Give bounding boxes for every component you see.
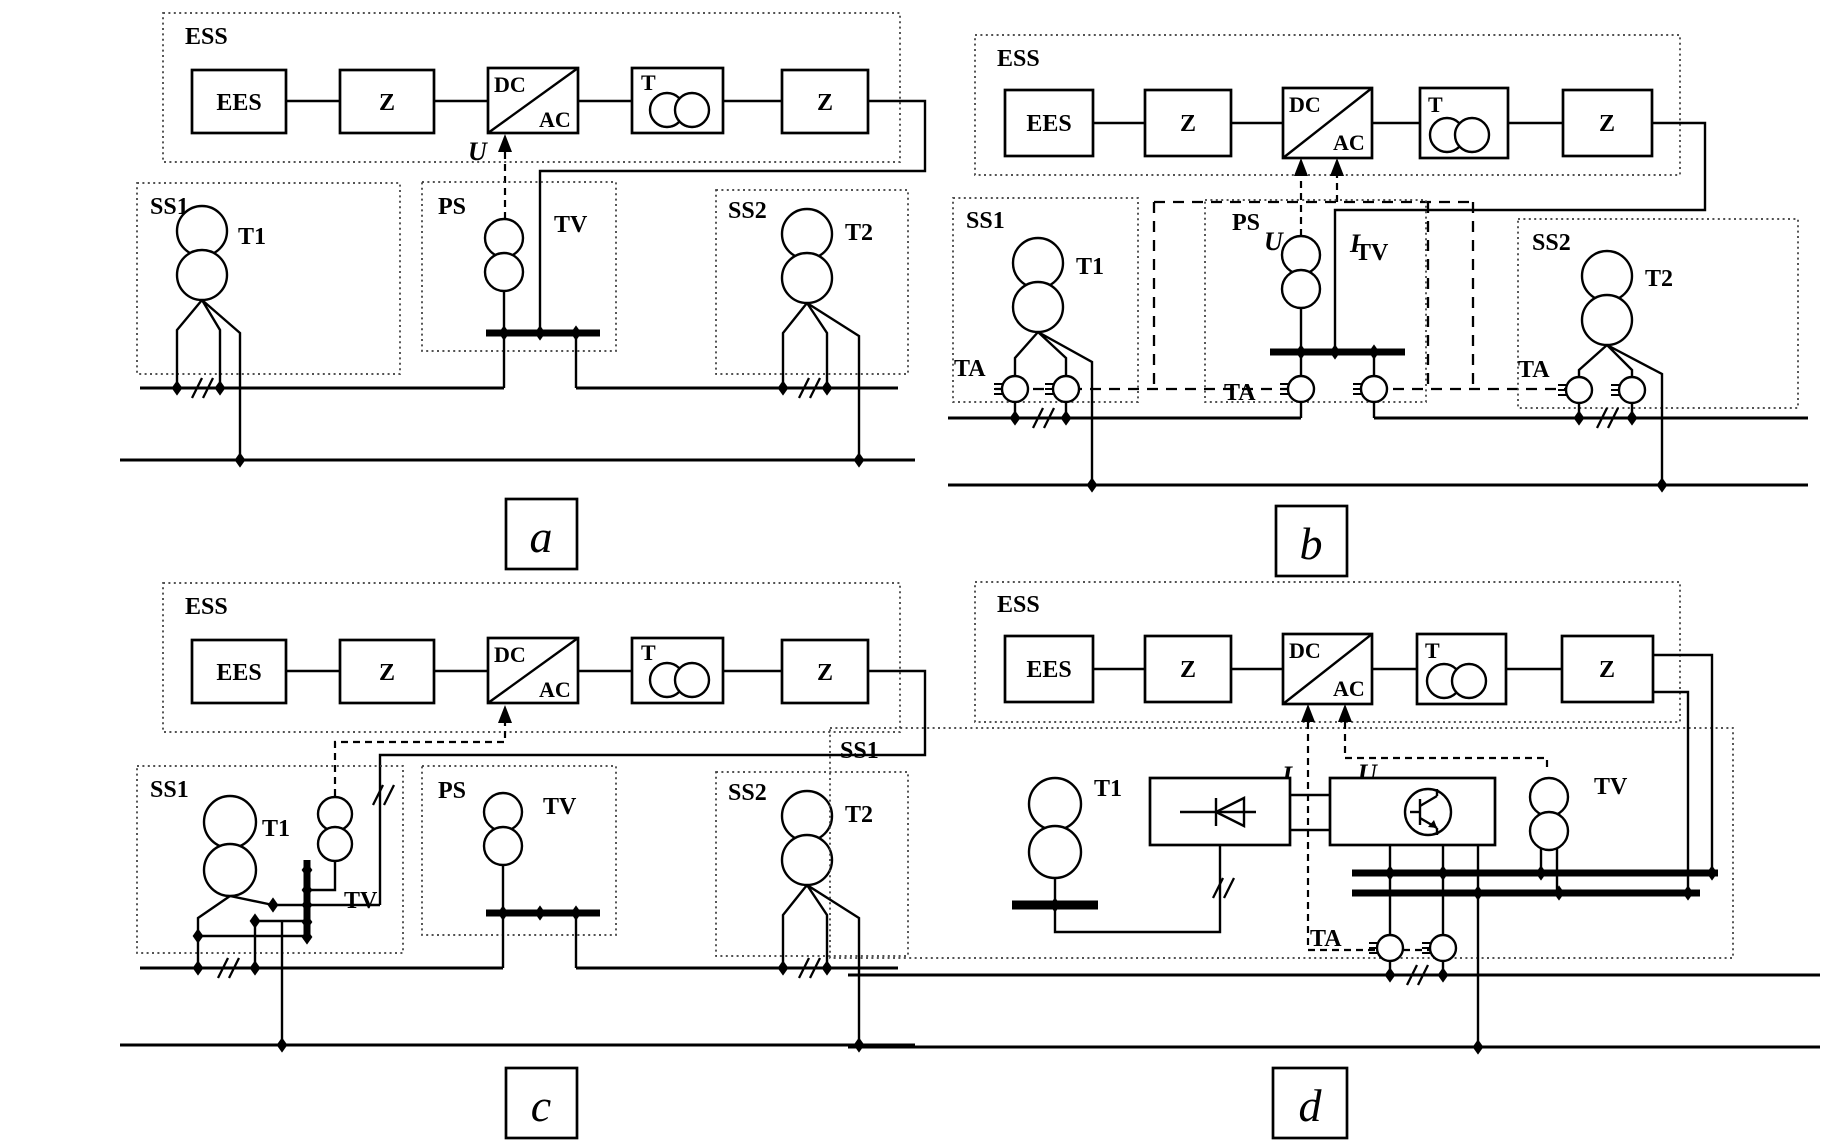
t-text-d: T	[1425, 638, 1440, 663]
t-text-a: T	[641, 70, 656, 95]
caption-letter-a: a	[530, 511, 553, 562]
transformer-tv-ss1-c	[318, 797, 352, 861]
ess-label-a: ESS	[185, 24, 228, 50]
t-winding-icon	[675, 93, 709, 127]
transformer-t2-c	[782, 791, 832, 885]
tv-label-d: TV	[1594, 774, 1628, 800]
ees-text-c: EES	[216, 660, 261, 686]
u-label-b: U	[1264, 227, 1284, 256]
transformer-tv-d	[1530, 778, 1568, 850]
transformer-t1-b	[1013, 238, 1063, 332]
tv-label-b: TV	[1355, 240, 1389, 266]
z-right-text-a: Z	[817, 90, 833, 116]
u-label-a: U	[468, 137, 488, 166]
current-transformer-icon	[1611, 377, 1645, 403]
tv-label-a: TV	[554, 212, 588, 238]
current-transformer-icon	[1369, 935, 1403, 961]
ac-text-b: AC	[1333, 130, 1365, 155]
dc-text-a: DC	[494, 72, 526, 97]
t2-label-c: T2	[845, 802, 873, 828]
u-arrow-icon	[1338, 704, 1352, 722]
ac-text-a: AC	[539, 107, 571, 132]
line-break-icon	[1213, 878, 1234, 898]
caption-letter-b: b	[1300, 518, 1323, 569]
current-transformer-icon	[994, 376, 1028, 402]
ess-label-b: ESS	[997, 46, 1040, 72]
caption-letter-d: d	[1299, 1080, 1323, 1131]
z-left-text-d: Z	[1180, 657, 1196, 683]
t-text-b: T	[1428, 92, 1443, 117]
ps-label-c: PS	[438, 778, 466, 804]
circuit-panel-d: ESS SS1 EES Z DC AC T Z I U T1	[830, 582, 1820, 1138]
u-measure-line-c	[335, 723, 505, 796]
z-left-text-a: Z	[379, 90, 395, 116]
transformer-t2-b	[1582, 251, 1632, 345]
transformer-t1-d	[1029, 778, 1081, 878]
z-left-text-c: Z	[379, 660, 395, 686]
u-arrow-icon	[498, 705, 512, 723]
i-arrow-icon	[1330, 158, 1344, 176]
transformer-tv-b	[1282, 236, 1320, 308]
ps-drops-b	[1301, 308, 1374, 418]
transformer-t2-a	[782, 209, 832, 303]
ta-label-ss1-b: TA	[954, 356, 986, 382]
ees-text-d: EES	[1026, 657, 1071, 683]
current-transformer-icon	[1280, 376, 1314, 402]
line-break-icon	[373, 785, 394, 805]
ess-feeder-b	[1335, 123, 1705, 352]
t1-feeders-a	[177, 300, 240, 460]
ac-text-d: AC	[1333, 676, 1365, 701]
t2-label-b: T2	[1645, 266, 1673, 292]
current-transformer-icon	[1353, 376, 1387, 402]
ss2-label-b: SS2	[1532, 230, 1571, 256]
z-right-text-c: Z	[817, 660, 833, 686]
current-transformer-icon	[1558, 377, 1592, 403]
dc-text-b: DC	[1289, 92, 1321, 117]
igbt-icon	[1405, 789, 1451, 835]
ss2-label-a: SS2	[728, 198, 767, 224]
transformer-tv-ps-c	[484, 793, 522, 865]
dc-link-lines-d	[1290, 795, 1330, 830]
ees-text-a: EES	[216, 90, 261, 116]
ess-label-c: ESS	[185, 594, 228, 620]
transformer-t1-c	[204, 796, 256, 896]
z-right-text-b: Z	[1599, 111, 1615, 137]
t1-label-d: T1	[1094, 776, 1122, 802]
ss1-label-c: SS1	[150, 777, 189, 803]
t2-feeders-a	[783, 303, 859, 460]
t2-feeders-b	[1579, 345, 1662, 485]
t1-label-a: T1	[238, 224, 266, 250]
caption-letter-c: c	[531, 1080, 551, 1131]
ss1-label-d: SS1	[840, 738, 879, 764]
circuit-panel-b: ESS EES Z DC AC T Z U I SS1 T1 TA	[948, 35, 1808, 576]
ess-label-d: ESS	[997, 592, 1040, 618]
ss1-label-b: SS1	[966, 208, 1005, 234]
z-right-text-d: Z	[1599, 657, 1615, 683]
z-left-text-b: Z	[1180, 111, 1196, 137]
t-text-c: T	[641, 640, 656, 665]
transformer-tv-a	[485, 219, 523, 291]
ta-label-d: TA	[1310, 926, 1342, 952]
u-arrow-icon	[498, 134, 512, 152]
circuit-panel-c: ESS EES Z DC AC T Z SS1 T1 TV PS	[120, 583, 925, 1138]
ess-feeder-d	[1653, 655, 1712, 893]
current-transformer-icon	[1045, 376, 1079, 402]
ta-label-ps-b: TA	[1224, 380, 1256, 406]
ac-text-c: AC	[539, 677, 571, 702]
i-arrow-icon	[1301, 704, 1315, 722]
t-winding-icon	[675, 663, 709, 697]
current-transformer-icon	[1422, 935, 1456, 961]
t2-label-a: T2	[845, 220, 873, 246]
ta-label-ss2-b: TA	[1518, 357, 1550, 383]
circuit-diagram-svg: ESS EES Z DC AC T Z U SS1 T1 PS TV	[0, 0, 1831, 1140]
tv-label-ss1-c: TV	[344, 888, 378, 914]
t2-feeders-c	[783, 885, 859, 1045]
tv-label-ps-c: TV	[543, 794, 577, 820]
ps-label-b: PS	[1232, 210, 1260, 236]
t-winding-icon	[1452, 664, 1486, 698]
schematic-figure: ESS EES Z DC AC T Z U SS1 T1 PS TV	[0, 0, 1831, 1140]
dc-text-c: DC	[494, 642, 526, 667]
circuit-panel-a: ESS EES Z DC AC T Z U SS1 T1 PS TV	[120, 13, 925, 569]
ees-text-b: EES	[1026, 111, 1071, 137]
dc-text-d: DC	[1289, 638, 1321, 663]
ss2-label-c: SS2	[728, 780, 767, 806]
t1-label-c: T1	[262, 816, 290, 842]
t1-label-b: T1	[1076, 254, 1104, 280]
ps-label-a: PS	[438, 194, 466, 220]
transformer-t1-a	[177, 206, 227, 300]
u-arrow-icon	[1294, 158, 1308, 176]
t-winding-icon	[1455, 118, 1489, 152]
